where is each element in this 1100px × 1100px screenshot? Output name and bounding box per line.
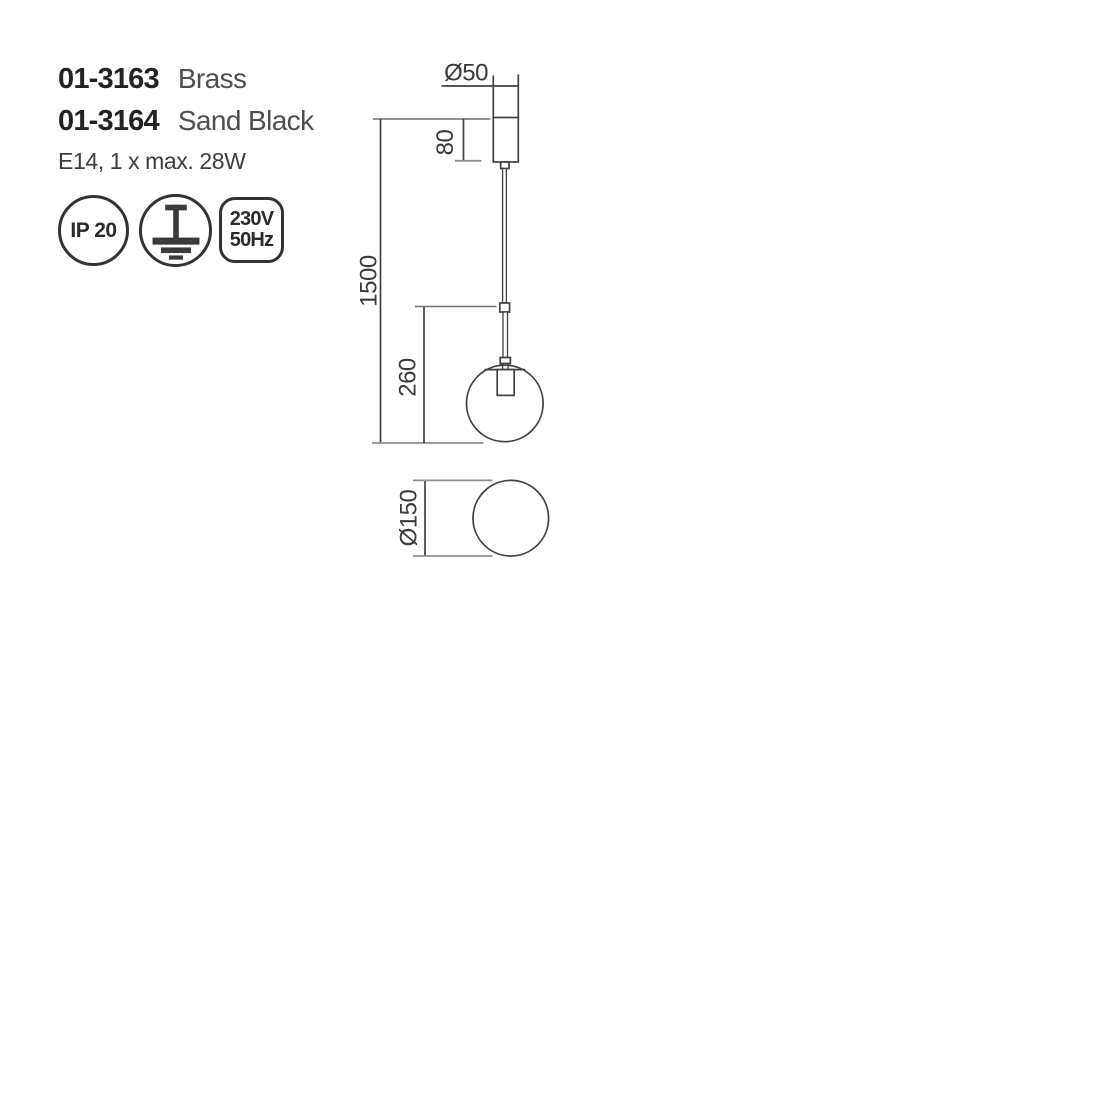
dim-label-canopy-diameter: Ø50 bbox=[444, 60, 488, 87]
datasheet-page: 01-3163Brass 01-3164Sand Black E14, 1 x … bbox=[0, 0, 1100, 1100]
dim-label-globe-diameter: Ø150 bbox=[396, 489, 423, 546]
suspension-wire bbox=[503, 169, 507, 304]
dim-label-canopy-height: 80 bbox=[432, 130, 459, 156]
dim-label-total-height: 1500 bbox=[356, 255, 383, 307]
canopy bbox=[493, 118, 518, 163]
globe-top-view bbox=[473, 480, 549, 556]
lamp-socket bbox=[497, 370, 514, 396]
canopy-connector bbox=[501, 162, 509, 169]
rod-flange bbox=[500, 358, 510, 364]
wire-joint bbox=[500, 303, 510, 312]
stem-rod bbox=[503, 312, 508, 358]
dim-label-pendant-height: 260 bbox=[395, 358, 422, 397]
technical-drawing: Ø50 80 1500 260 Ø150 bbox=[0, 0, 1100, 1100]
